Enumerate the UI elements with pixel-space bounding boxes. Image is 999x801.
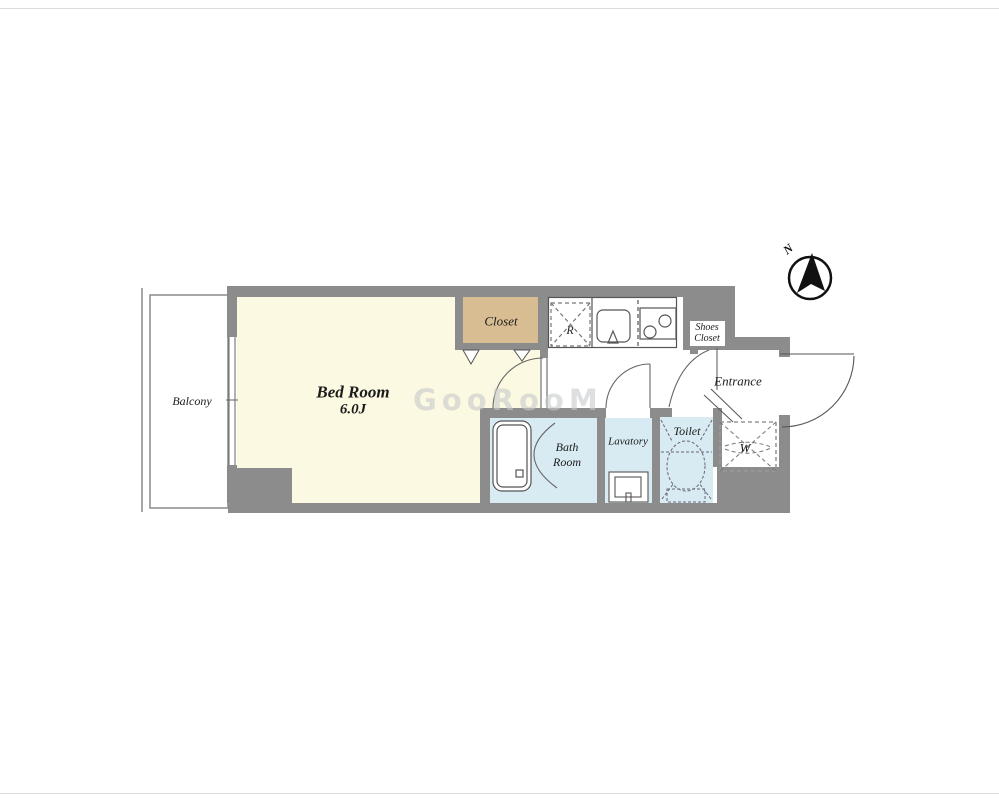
balcony-label: Balcony bbox=[172, 395, 211, 407]
kitchen-corridor-floor bbox=[548, 297, 683, 408]
bedroom-label: Bed Room bbox=[316, 384, 389, 401]
wall-bath-lavatory bbox=[597, 408, 605, 503]
wall-bottom bbox=[228, 503, 790, 513]
washer-label: W bbox=[740, 442, 751, 455]
bedroom-window-gap bbox=[227, 337, 237, 465]
wall-bath-left bbox=[480, 415, 490, 503]
wall-left-upper bbox=[227, 286, 237, 337]
refrigerator-label: R bbox=[566, 324, 573, 336]
wall-bath-top bbox=[480, 408, 606, 418]
toilet-label: Toilet bbox=[674, 425, 701, 437]
entrance-label: Entrance bbox=[714, 375, 762, 388]
closet-label: Closet bbox=[484, 315, 517, 328]
shoes-closet-label-1: Shoes bbox=[695, 323, 718, 333]
wall-lavatory-toilet bbox=[652, 408, 660, 503]
wall-topright-step bbox=[724, 337, 790, 350]
wall-toilet-right bbox=[713, 408, 722, 467]
bathroom-label-2: Room bbox=[553, 456, 581, 468]
entrance-door-icon bbox=[780, 354, 854, 427]
wall-right-lower bbox=[779, 415, 790, 470]
image-bottom-border bbox=[0, 793, 999, 794]
wall-bottomleft-notch bbox=[227, 468, 292, 503]
shoes-closet-label-2: Closet bbox=[694, 334, 720, 344]
floorplan-canvas: Balcony Bed Room 6.0J Closet Shoes Close… bbox=[0, 0, 999, 801]
wall-entrance-stub bbox=[690, 345, 698, 354]
lavatory-label: Lavatory bbox=[608, 437, 648, 448]
lavatory-door-opening bbox=[606, 408, 650, 418]
image-top-border bbox=[0, 8, 999, 9]
wall-right-stub bbox=[779, 350, 790, 357]
bathroom-label-1: Bath bbox=[556, 441, 579, 453]
bedroom-door-opening bbox=[540, 358, 548, 408]
wall-bedroom-door-stub bbox=[540, 350, 548, 358]
north-arrow-icon bbox=[789, 253, 831, 299]
bedroom-size-label: 6.0J bbox=[340, 403, 366, 418]
lavatory-floor bbox=[605, 418, 652, 503]
north-label: N bbox=[780, 241, 796, 258]
